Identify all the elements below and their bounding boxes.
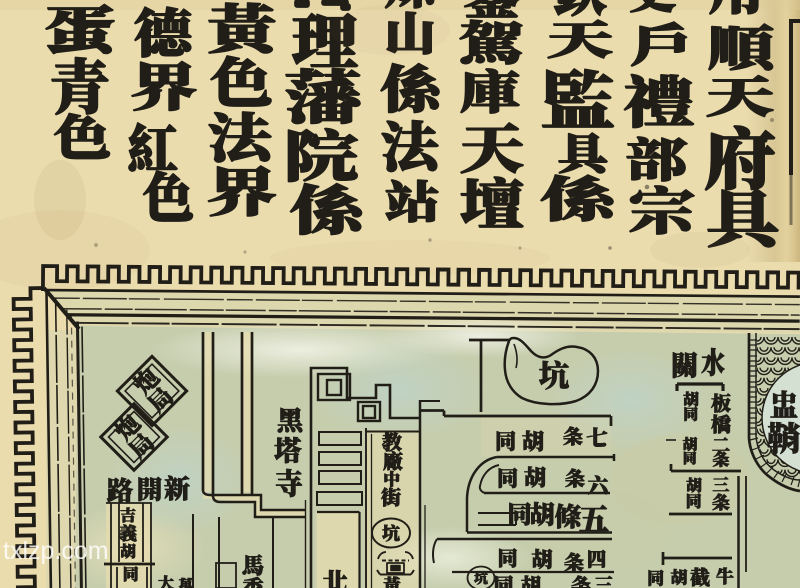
svg-text:txlzp.com: txlzp.com — [3, 537, 109, 565]
